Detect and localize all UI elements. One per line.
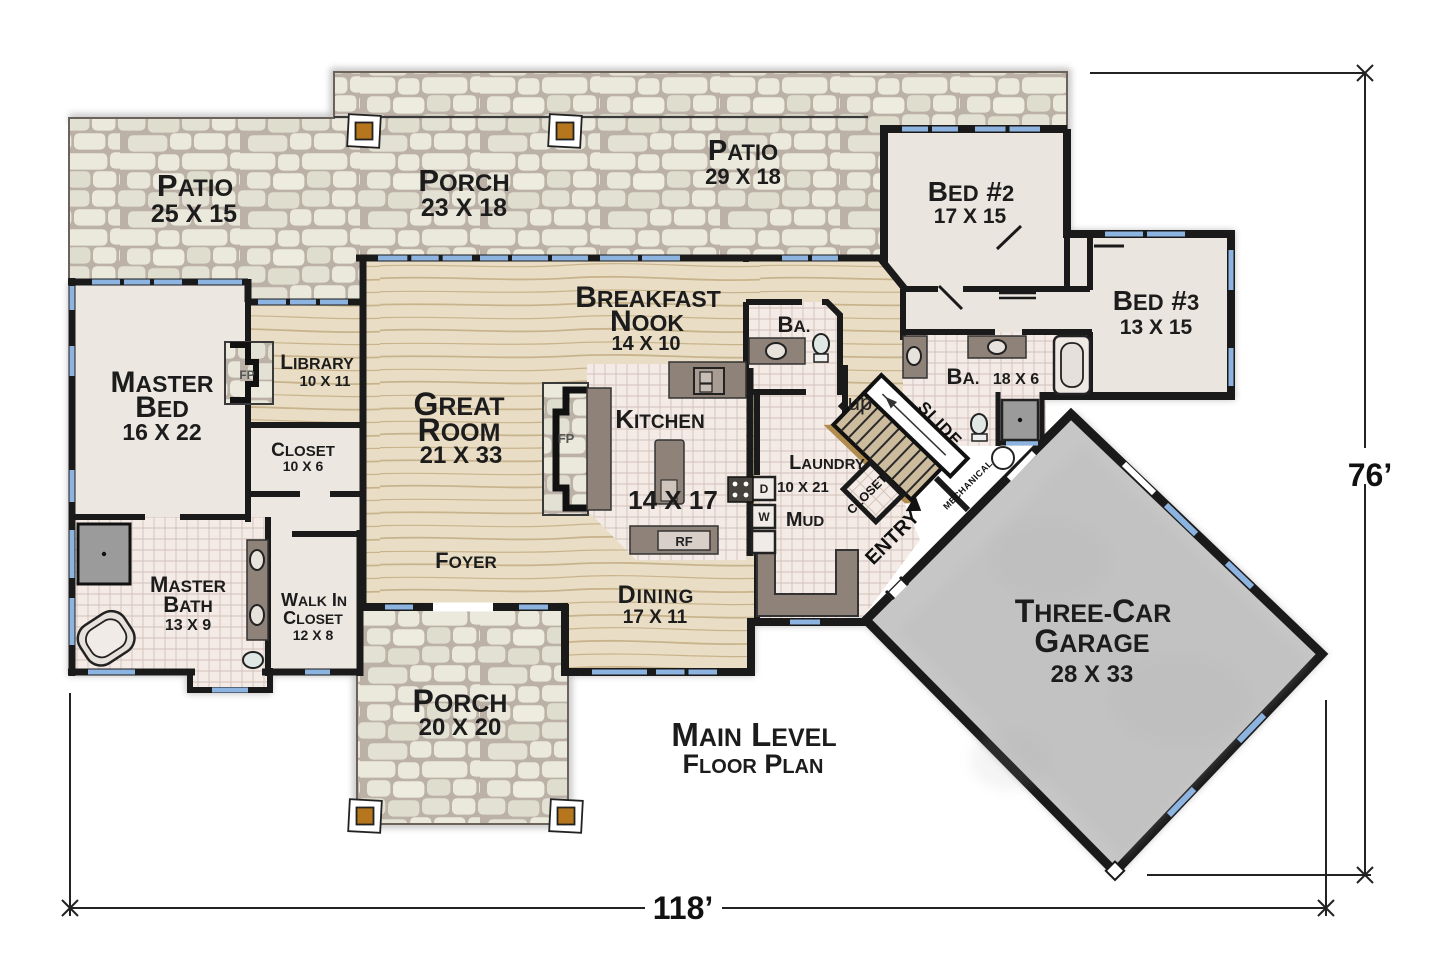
- svg-text:21 X 33: 21 X 33: [420, 442, 503, 469]
- svg-text:up: up: [848, 390, 872, 415]
- svg-text:MASTER: MASTER: [111, 366, 214, 399]
- svg-text:10 X 11: 10 X 11: [300, 373, 351, 390]
- svg-text:29 X 18: 29 X 18: [705, 164, 781, 189]
- svg-text:W: W: [758, 510, 770, 524]
- svg-text:17 X 11: 17 X 11: [623, 607, 688, 628]
- svg-text:PATIO: PATIO: [708, 135, 778, 167]
- svg-text:RF: RF: [675, 534, 692, 549]
- svg-text:10 X 6: 10 X 6: [283, 458, 324, 474]
- svg-text:MUD: MUD: [786, 509, 825, 531]
- svg-text:FP: FP: [558, 431, 575, 446]
- svg-text:CLOSET: CLOSET: [283, 608, 343, 628]
- svg-text:BED #2: BED #2: [928, 176, 1014, 207]
- svg-text:17 X 15: 17 X 15: [934, 205, 1007, 228]
- svg-text:FP: FP: [239, 368, 254, 382]
- svg-text:16 X 22: 16 X 22: [122, 419, 201, 445]
- svg-text:25 X 15: 25 X 15: [151, 200, 237, 228]
- svg-text:76’: 76’: [1348, 457, 1392, 493]
- svg-text:D: D: [760, 482, 769, 496]
- svg-text:14 X 10: 14 X 10: [612, 333, 681, 355]
- svg-text:28 X 33: 28 X 33: [1051, 661, 1134, 688]
- svg-text:13 X 9: 13 X 9: [165, 617, 211, 634]
- svg-text:12 X 8: 12 X 8: [293, 627, 334, 643]
- svg-text:WALK IN: WALK IN: [281, 590, 347, 610]
- svg-text:14 X 17: 14 X 17: [628, 485, 718, 515]
- svg-text:118’: 118’: [653, 890, 714, 926]
- svg-text:13 X 15: 13 X 15: [1120, 316, 1193, 339]
- svg-text:23 X 18: 23 X 18: [421, 194, 507, 222]
- svg-text:BED #3: BED #3: [1113, 285, 1199, 316]
- svg-text:LAUNDRY: LAUNDRY: [789, 452, 865, 474]
- svg-text:10 X 21: 10 X 21: [777, 479, 829, 496]
- svg-text:18 X 6: 18 X 6: [993, 371, 1039, 388]
- svg-text:20 X 20: 20 X 20: [419, 714, 502, 741]
